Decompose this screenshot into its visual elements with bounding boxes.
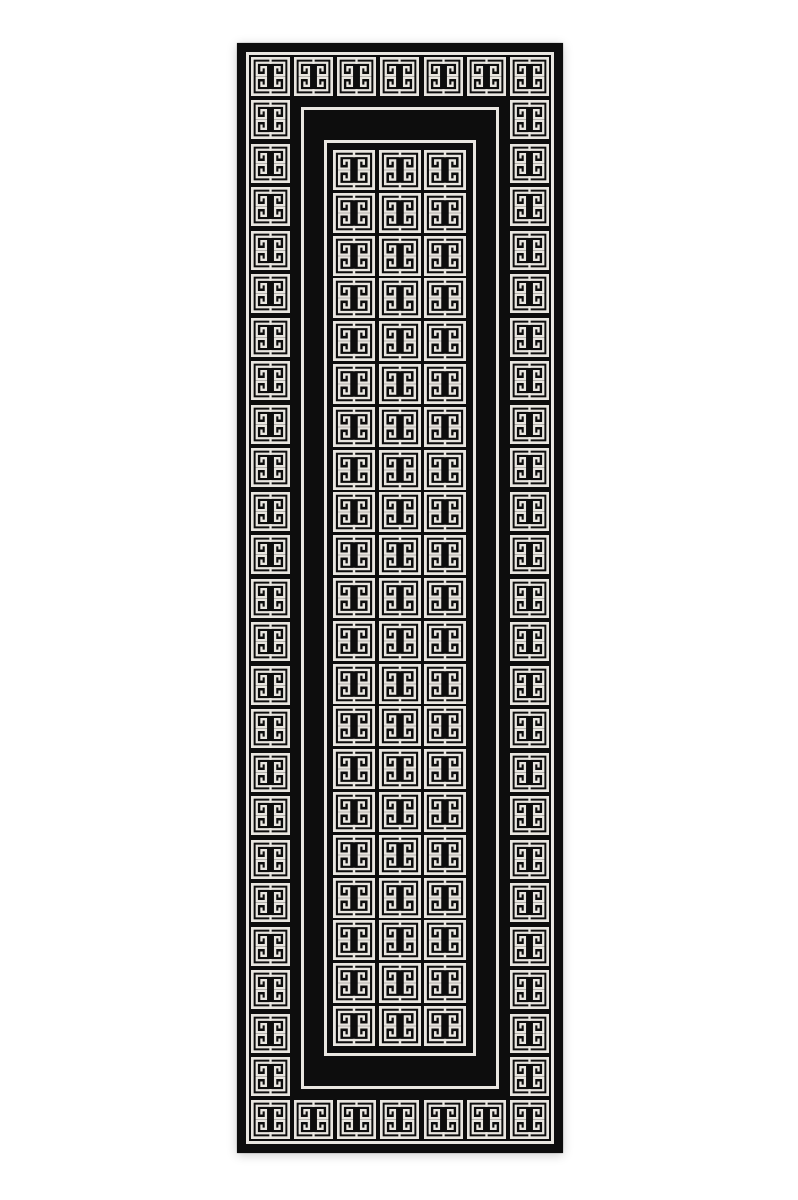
- greek-key-tile: [251, 318, 290, 357]
- greek-key-tile: [424, 835, 466, 875]
- greek-key-tile: [251, 927, 290, 966]
- greek-key-tile: [379, 835, 421, 875]
- greek-key-tile: [251, 187, 290, 226]
- greek-key-tile: [510, 492, 549, 531]
- greek-key-tile: [510, 448, 549, 487]
- greek-key-tile: [424, 878, 466, 918]
- greek-key-tile: [379, 621, 421, 661]
- greek-key-tile: [379, 878, 421, 918]
- greek-key-tile: [510, 1100, 549, 1139]
- greek-key-tile: [510, 840, 549, 879]
- greek-key-tile: [333, 278, 375, 318]
- greek-key-tile: [333, 835, 375, 875]
- greek-key-tile: [333, 450, 375, 490]
- greek-key-tile: [379, 792, 421, 832]
- border-band-left: [251, 100, 290, 1096]
- greek-key-tile: [510, 666, 549, 705]
- border-band-right: [510, 100, 549, 1096]
- greek-key-tile: [333, 963, 375, 1003]
- greek-key-tile: [333, 578, 375, 618]
- greek-key-tile: [251, 796, 290, 835]
- greek-key-tile: [251, 405, 290, 444]
- greek-key-tile: [424, 193, 466, 233]
- greek-key-tile: [333, 664, 375, 704]
- greek-key-tile: [333, 920, 375, 960]
- greek-key-tile: [510, 622, 549, 661]
- greek-key-tile: [379, 706, 421, 746]
- greek-key-tile: [424, 492, 466, 532]
- greek-key-tile: [510, 796, 549, 835]
- greek-key-tile: [424, 407, 466, 447]
- greek-key-tile: [379, 236, 421, 276]
- greek-key-tile: [424, 450, 466, 490]
- greek-key-tile: [510, 970, 549, 1009]
- greek-key-tile: [424, 706, 466, 746]
- greek-key-tile: [424, 920, 466, 960]
- greek-key-tile: [251, 1100, 290, 1139]
- greek-key-tile: [333, 364, 375, 404]
- greek-key-tile: [510, 361, 549, 400]
- greek-key-tile: [424, 150, 466, 190]
- greek-key-tile: [380, 57, 419, 96]
- greek-key-tile: [379, 278, 421, 318]
- greek-key-tile: [333, 193, 375, 233]
- greek-key-tile: [251, 840, 290, 879]
- greek-key-tile: [510, 231, 549, 270]
- greek-key-tile: [251, 709, 290, 748]
- greek-key-tile: [424, 236, 466, 276]
- greek-key-tile: [510, 274, 549, 313]
- greek-key-tile: [294, 1100, 333, 1139]
- greek-key-tile: [510, 1014, 549, 1053]
- greek-key-tile: [333, 236, 375, 276]
- greek-key-tile: [467, 1100, 506, 1139]
- greek-key-tile: [424, 321, 466, 361]
- border-band-bottom: [251, 1100, 549, 1139]
- greek-key-tile: [251, 666, 290, 705]
- greek-key-tile: [379, 193, 421, 233]
- greek-key-tile: [510, 927, 549, 966]
- greek-key-tile: [333, 878, 375, 918]
- greek-key-tile: [251, 361, 290, 400]
- greek-key-tile: [380, 1100, 419, 1139]
- greek-key-tile: [333, 535, 375, 575]
- greek-key-tile: [424, 1006, 466, 1046]
- greek-key-tile: [510, 883, 549, 922]
- greek-key-tile: [333, 1006, 375, 1046]
- greek-key-tile: [510, 1057, 549, 1096]
- greek-key-tile: [424, 1100, 463, 1139]
- greek-key-tile: [379, 450, 421, 490]
- greek-key-tile: [379, 749, 421, 789]
- greek-key-tile: [379, 963, 421, 1003]
- greek-key-tile: [424, 621, 466, 661]
- greek-key-tile: [379, 920, 421, 960]
- greek-key-tile: [251, 57, 290, 96]
- greek-key-tile: [251, 1014, 290, 1053]
- greek-key-tile: [251, 753, 290, 792]
- rug: [237, 43, 563, 1153]
- greek-key-tile: [424, 963, 466, 1003]
- greek-key-tile: [379, 150, 421, 190]
- greek-key-tile: [251, 883, 290, 922]
- greek-key-tile: [251, 622, 290, 661]
- greek-key-tile: [510, 57, 549, 96]
- inner-tile-grid: [333, 150, 466, 1046]
- greek-key-tile: [424, 57, 463, 96]
- greek-key-tile: [251, 970, 290, 1009]
- border-band-top: [251, 57, 549, 96]
- greek-key-tile: [510, 187, 549, 226]
- greek-key-tile: [251, 535, 290, 574]
- greek-key-tile: [424, 578, 466, 618]
- greek-key-tile: [510, 318, 549, 357]
- greek-key-tile: [510, 405, 549, 444]
- greek-key-tile: [251, 1057, 290, 1096]
- greek-key-tile: [510, 579, 549, 618]
- greek-key-tile: [337, 1100, 376, 1139]
- greek-key-tile: [251, 144, 290, 183]
- photo-background: [0, 0, 798, 1200]
- greek-key-tile: [379, 321, 421, 361]
- greek-key-tile: [510, 535, 549, 574]
- greek-key-tile: [251, 231, 290, 270]
- greek-key-tile: [424, 664, 466, 704]
- greek-key-tile: [424, 278, 466, 318]
- greek-key-tile: [379, 407, 421, 447]
- greek-key-tile: [510, 144, 549, 183]
- greek-key-tile: [379, 664, 421, 704]
- greek-key-tile: [424, 749, 466, 789]
- greek-key-tile: [251, 492, 290, 531]
- greek-key-tile: [379, 364, 421, 404]
- greek-key-tile: [379, 535, 421, 575]
- greek-key-tile: [379, 578, 421, 618]
- greek-key-tile: [467, 57, 506, 96]
- greek-key-tile: [424, 364, 466, 404]
- greek-key-tile: [333, 492, 375, 532]
- greek-key-tile: [424, 535, 466, 575]
- greek-key-tile: [510, 100, 549, 139]
- greek-key-tile: [251, 579, 290, 618]
- greek-key-tile: [333, 621, 375, 661]
- greek-key-tile: [333, 749, 375, 789]
- greek-key-tile: [333, 706, 375, 746]
- greek-key-tile: [251, 274, 290, 313]
- greek-key-tile: [379, 1006, 421, 1046]
- greek-key-tile: [333, 792, 375, 832]
- greek-key-tile: [337, 57, 376, 96]
- greek-key-tile: [424, 792, 466, 832]
- greek-key-tile: [251, 100, 290, 139]
- greek-key-tile: [333, 407, 375, 447]
- greek-key-tile: [251, 448, 290, 487]
- greek-key-tile: [333, 150, 375, 190]
- greek-key-tile: [510, 753, 549, 792]
- greek-key-tile: [333, 321, 375, 361]
- greek-key-tile: [379, 492, 421, 532]
- greek-key-tile: [510, 709, 549, 748]
- greek-key-tile: [294, 57, 333, 96]
